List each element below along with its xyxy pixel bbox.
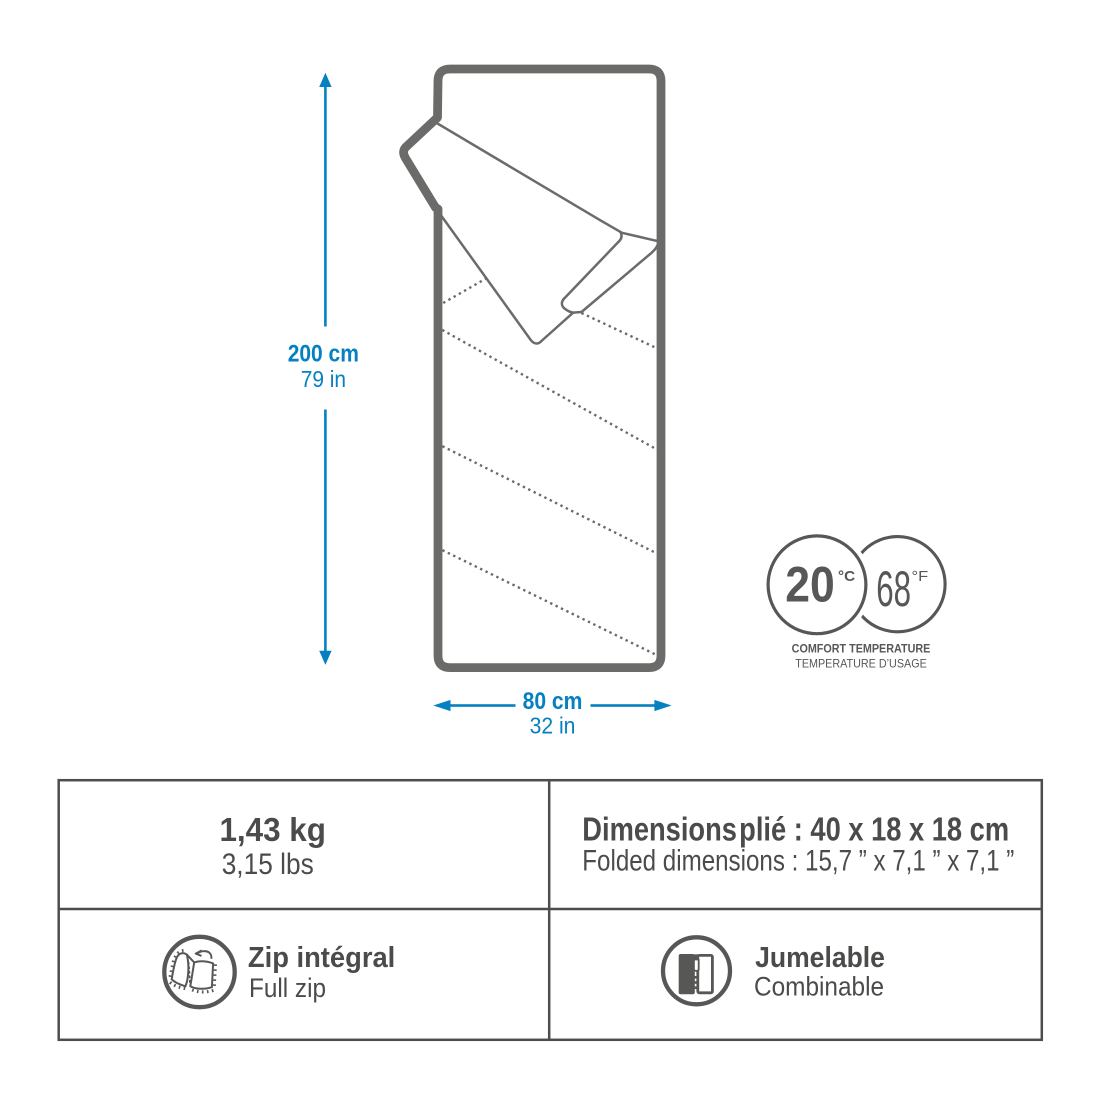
svg-text:Folded dimensions : 15,7 ” x 7: Folded dimensions : 15,7 ” x 7,1 ” x 7,1…	[582, 843, 1014, 877]
svg-text:3,15 lbs: 3,15 lbs	[222, 846, 314, 880]
svg-text:°C: °C	[838, 568, 855, 585]
svg-text:80 cm: 80 cm	[523, 688, 583, 715]
svg-text:°F: °F	[912, 569, 929, 585]
svg-text:20: 20	[785, 557, 834, 613]
svg-text:Combinable: Combinable	[754, 973, 884, 1002]
svg-text:1,43 kg: 1,43 kg	[219, 811, 325, 848]
svg-text:Zip intégral: Zip intégral	[248, 941, 395, 973]
svg-text:COMFORT TEMPERATURE: COMFORT TEMPERATURE	[792, 642, 931, 656]
svg-text:Jumelable: Jumelable	[755, 941, 885, 973]
svg-text:79 in: 79 in	[301, 366, 346, 392]
svg-text:32 in: 32 in	[530, 712, 576, 738]
svg-text:TEMPERATURE D’USAGE: TEMPERATURE D’USAGE	[795, 657, 927, 671]
svg-text:68: 68	[876, 560, 911, 616]
svg-text:200 cm: 200 cm	[288, 340, 359, 367]
svg-text:Full zip: Full zip	[249, 974, 326, 1003]
